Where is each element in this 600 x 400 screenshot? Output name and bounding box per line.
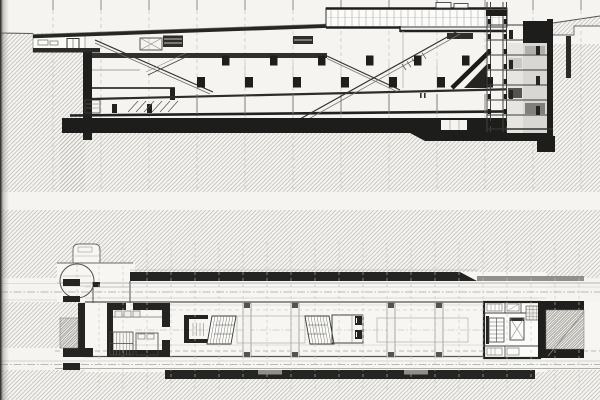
ceiling-plenum — [447, 33, 473, 39]
south-wall — [165, 370, 535, 379]
right-portal-bracket — [538, 301, 584, 358]
retaining-wall-stub — [566, 36, 571, 78]
roof-plant-unit — [454, 4, 468, 9]
architectural-drawing-scan — [0, 0, 600, 400]
right-diaphragm-wall — [547, 19, 553, 140]
north-wall — [130, 272, 460, 281]
scanned-book-page — [0, 0, 600, 400]
rooflight-monitor — [163, 36, 183, 48]
slab-recess — [441, 120, 467, 130]
shaft-cap — [486, 10, 507, 16]
earth-wedge — [60, 318, 78, 348]
parapet-block — [523, 21, 547, 43]
right-core-block — [484, 302, 540, 358]
right-margin-white — [584, 302, 600, 348]
earth-block — [546, 310, 584, 349]
roof-plant-unit — [436, 3, 451, 9]
plan-drawing — [0, 210, 600, 400]
